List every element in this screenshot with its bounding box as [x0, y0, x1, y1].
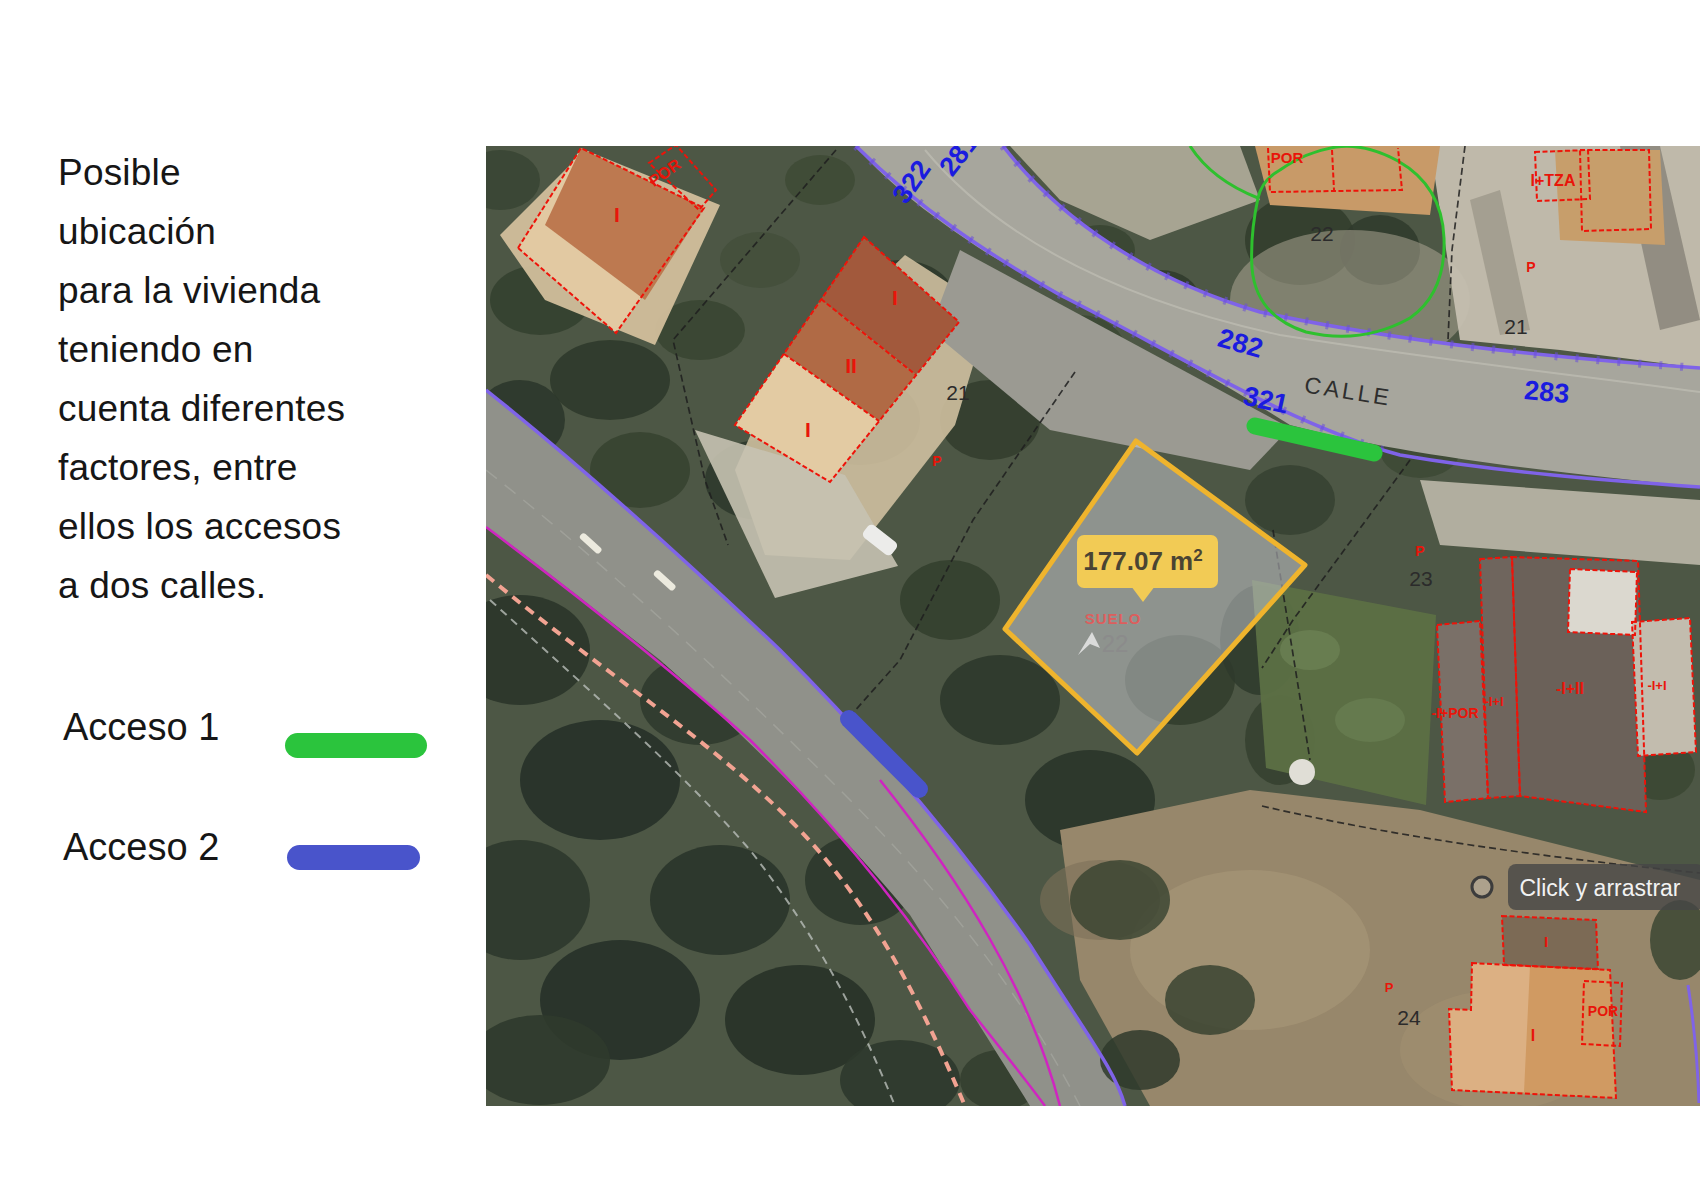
legend-label-acceso-2: Acceso 2: [63, 826, 219, 868]
description-line: a dos calles.: [58, 556, 458, 615]
map-canvas[interactable]: 281 322 282 321 283 CALLE 21 22 21 23 24…: [486, 146, 1700, 1106]
legend-label-acceso-1: Acceso 1: [63, 706, 219, 748]
cadastral-label: I: [805, 418, 811, 441]
description-line: factores, entre: [58, 438, 458, 497]
parcel-number: 24: [1397, 1006, 1421, 1029]
description-line: ubicación: [58, 202, 458, 261]
legend-row-acceso-1: Acceso 1: [63, 706, 219, 756]
lawn-light: [1335, 698, 1405, 742]
area-value: 177.07 m2: [1083, 546, 1202, 576]
cadastral-label: I: [892, 286, 898, 309]
cadastral-label: I: [614, 203, 620, 226]
parcel-number: 23: [1409, 567, 1432, 590]
cadastral-label: POR: [1588, 1003, 1618, 1019]
description-line: para la vivienda: [58, 261, 458, 320]
cadastral-label: P: [932, 453, 941, 469]
page: { "panel": { "paragraph_lines": [ "Posib…: [0, 0, 1700, 1187]
drag-hint-label: Click y arrastrar: [1519, 875, 1680, 901]
area-superscript: 2: [1193, 546, 1202, 565]
suelo-label: SUELO: [1085, 610, 1142, 627]
tree: [1100, 1030, 1180, 1090]
parcel-number-inside: 22: [1102, 630, 1129, 657]
cadastral-label: P: [1526, 259, 1535, 275]
cadastral-label: -I+II: [1556, 680, 1584, 697]
legend-row-acceso-2: Acceso 2: [63, 826, 219, 876]
lawn-light: [1280, 630, 1340, 670]
cadastral-label: I: [1544, 933, 1548, 950]
street-number: 283: [1523, 375, 1571, 409]
description-line: teniendo en: [58, 320, 458, 379]
drag-circle-icon[interactable]: [1472, 877, 1492, 897]
dome: [1289, 759, 1315, 785]
cadastral-label: P: [1415, 543, 1424, 559]
description-line: cuenta diferentes: [58, 379, 458, 438]
cadastral-label: -I+I: [1484, 694, 1503, 709]
access-2-swatch: [287, 845, 420, 870]
drag-hint-tooltip: Click y arrastrar: [1508, 864, 1700, 910]
cadastral-label: POR: [1271, 149, 1304, 166]
description-line: Posible: [58, 143, 458, 202]
parcel-number: 22: [1310, 222, 1333, 245]
cadastral-label: I: [1531, 1027, 1535, 1044]
cadastral-label: II: [845, 354, 857, 377]
tree: [1165, 965, 1255, 1035]
cadastral-label: I+TZA: [1531, 172, 1576, 189]
area-number: 177.07 m: [1083, 546, 1193, 576]
parcel-number: 21: [946, 381, 969, 404]
cadastral-label: -I+POR: [1431, 705, 1478, 721]
description-text: Posible ubicación para la vivienda tenie…: [58, 143, 458, 615]
tree: [1070, 860, 1170, 940]
parcel-number: 21: [1504, 315, 1527, 338]
cadastral-label: -I+I: [1647, 678, 1666, 693]
description-line: ellos los accesos: [58, 497, 458, 556]
cadastral-label: P: [1385, 980, 1394, 995]
access-1-swatch: [285, 733, 427, 758]
